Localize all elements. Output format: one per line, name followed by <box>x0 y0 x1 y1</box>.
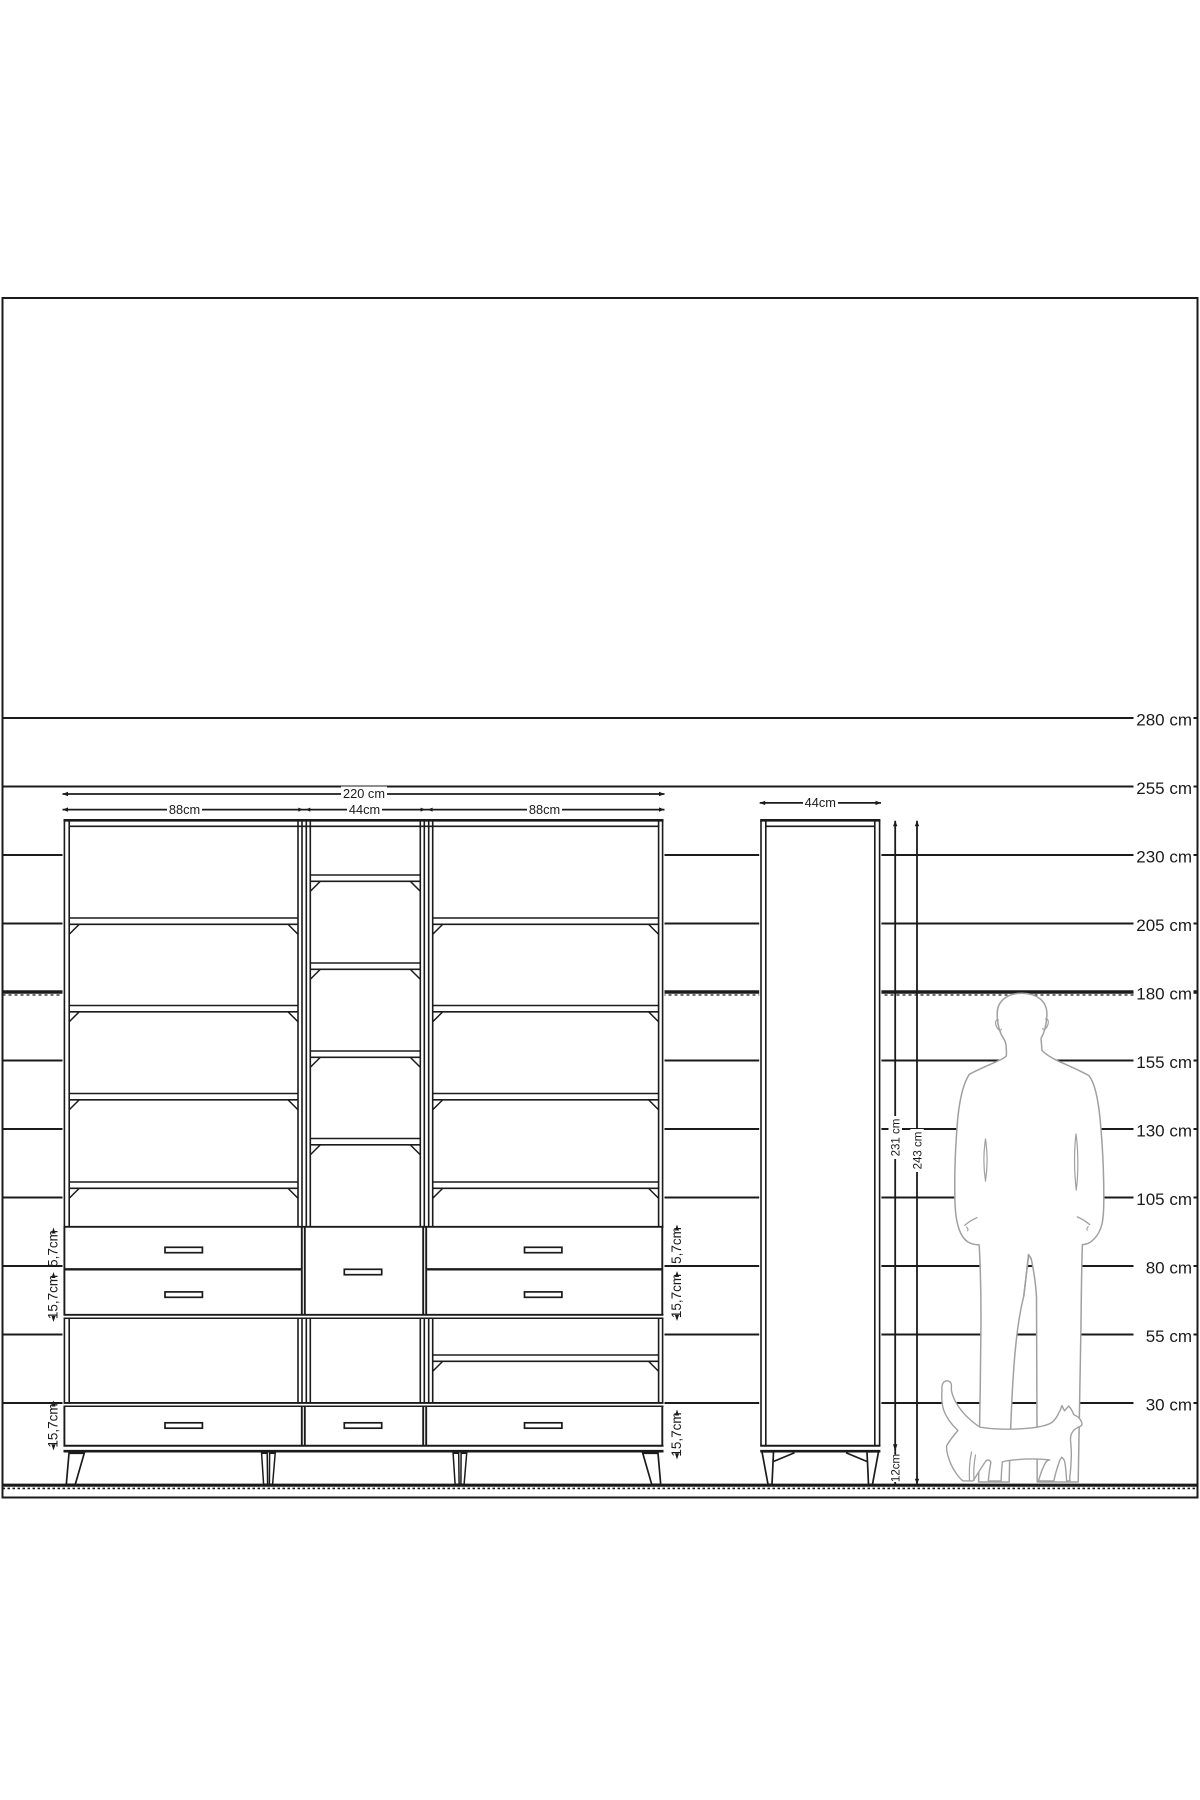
svg-text:44cm: 44cm <box>805 795 836 810</box>
svg-text:15,7cm: 15,7cm <box>669 1274 684 1318</box>
svg-text:230 cm: 230 cm <box>1136 847 1192 866</box>
svg-text:88cm: 88cm <box>169 802 200 817</box>
svg-text:255 cm: 255 cm <box>1136 779 1192 798</box>
svg-text:231 cm: 231 cm <box>891 1119 903 1157</box>
svg-text:220 cm: 220 cm <box>343 786 385 801</box>
svg-text:80 cm: 80 cm <box>1146 1258 1192 1277</box>
svg-text:155 cm: 155 cm <box>1136 1053 1192 1072</box>
svg-text:15,7cm: 15,7cm <box>669 1412 684 1456</box>
svg-text:5,7cm: 5,7cm <box>669 1227 684 1264</box>
svg-text:105 cm: 105 cm <box>1136 1190 1192 1209</box>
svg-text:30 cm: 30 cm <box>1146 1395 1192 1414</box>
svg-text:130 cm: 130 cm <box>1136 1121 1192 1140</box>
svg-text:243 cm: 243 cm <box>912 1132 924 1170</box>
svg-text:15,7cm: 15,7cm <box>46 1403 61 1447</box>
svg-text:12cm: 12cm <box>891 1454 903 1482</box>
svg-text:280 cm: 280 cm <box>1136 710 1192 729</box>
svg-text:88cm: 88cm <box>529 802 560 817</box>
svg-text:55 cm: 55 cm <box>1146 1327 1192 1346</box>
svg-text:44cm: 44cm <box>349 802 380 817</box>
svg-text:180 cm: 180 cm <box>1136 984 1192 1003</box>
svg-text:205 cm: 205 cm <box>1136 916 1192 935</box>
svg-text:15,7cm: 15,7cm <box>46 1275 61 1319</box>
svg-text:5,7cm: 5,7cm <box>46 1230 61 1267</box>
